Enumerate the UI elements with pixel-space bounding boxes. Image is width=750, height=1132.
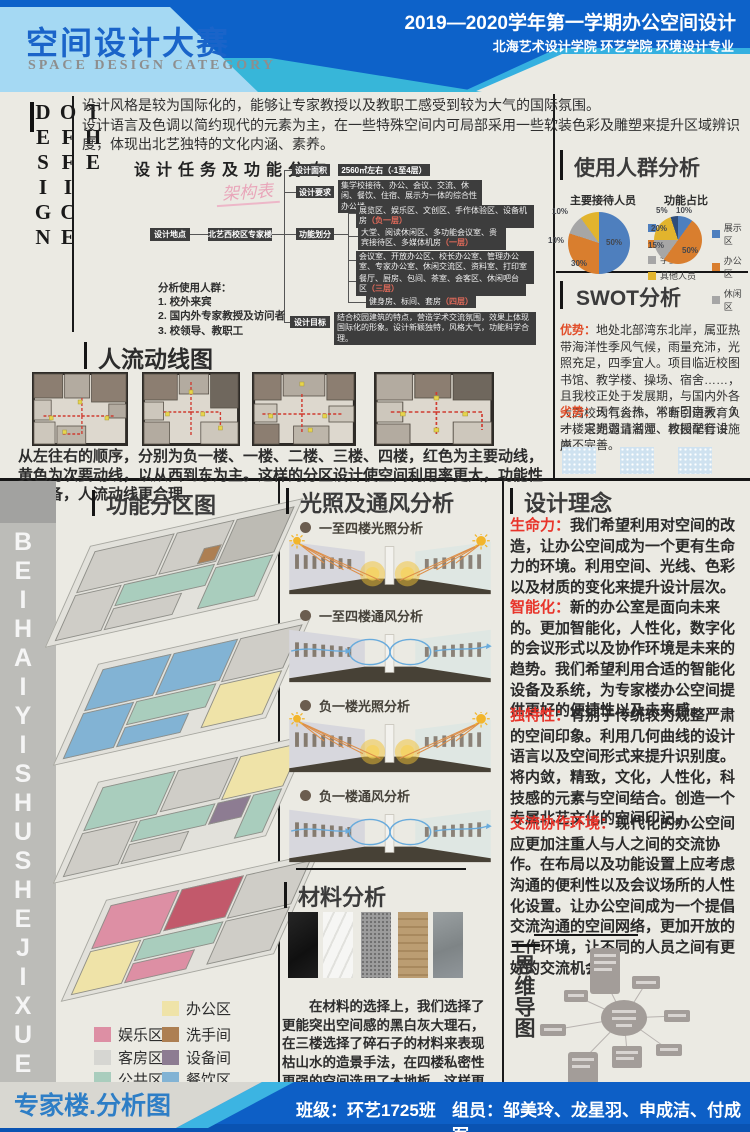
concept-item-vitality: 生命力：我们希望利用对空间的改造，让办公空间成为一个更有生命力的环境。利用空间、… (510, 516, 748, 599)
mindmap-graphic (532, 940, 750, 1091)
concept-item-smart: 智能化：新的办公室是面向未来的。更加智能化，人性化，数字化的会议形式以及协作环境… (510, 598, 748, 722)
users-analysis: 分析使用人群： 1. 校外来宾 2. 国内外专家教授及访问者 3. 校领导、教职… (158, 281, 285, 338)
flow-line (190, 234, 208, 235)
bullet-icon (300, 610, 311, 621)
legend-swatch (648, 272, 656, 280)
team-label: 组员： (452, 1101, 503, 1120)
flow-location-label: 设计地点 (150, 228, 190, 241)
flow-zone-5: 健身房、标间、套房（四层） (366, 296, 476, 308)
header-band: 空间设计大赛 SPACE DESIGN CATEGORY 2019—2020学年… (0, 0, 750, 92)
pie1-pct: 50% (606, 238, 622, 247)
concept-lead: 智能化： (510, 599, 570, 616)
legend-item: 办公区 (712, 254, 750, 280)
light-diagram-2 (286, 712, 494, 779)
zone-floor: （三层） (367, 284, 399, 293)
legend-swatch (712, 296, 720, 304)
flow-line (284, 170, 292, 171)
expert-building-label: 专家楼.分析图 (14, 1086, 171, 1122)
flow-require-label: 设计要求 (296, 186, 334, 198)
lightvent-title: 光照及通风分析 (300, 486, 454, 518)
materials-title: 材料分析 (298, 880, 386, 912)
legend-label: 娱乐区 (118, 1024, 163, 1045)
axon-floor-plate-4 (61, 852, 320, 1002)
users-title: 分析使用人群： (158, 281, 285, 295)
materials-title-bar (284, 882, 287, 908)
zone-legend-item: 设备间 (162, 1047, 231, 1068)
concept-lead: 独特性： (510, 707, 570, 724)
vent-diagram-2 (286, 802, 494, 869)
material-swatch-white-marble (323, 912, 353, 978)
poster-subtitle: SPACE DESIGN CATEGORY (28, 58, 276, 74)
legend-swatch (648, 256, 656, 264)
flow-area-label: 设计面积 (292, 164, 330, 176)
flow-goal-value: 结合校园建筑的特点，营造学术交流氛围，效果上体现国际化的形象。设计新颖独特，风格… (334, 312, 536, 345)
legend-swatch (162, 1001, 179, 1016)
floor-plan-3 (252, 372, 356, 451)
legend-swatch (162, 1027, 179, 1042)
flow-zone-2: 大堂、阅读休闲区、多功能会议室、贵宾接待区、多媒体机房（一层） (358, 227, 506, 250)
flow-goal-label: 设计目标 (290, 316, 330, 328)
flow-spine-2 (348, 213, 349, 303)
bullet-icon (300, 522, 311, 533)
swot-title: SWOT分析 (576, 282, 681, 312)
material-swatch-gray-marble (433, 912, 463, 978)
class-value: 环艺1725班 (347, 1101, 436, 1120)
vent-diagram-1 (286, 622, 494, 689)
zoning-title: 功能分区图 (106, 488, 216, 520)
header-course: 2019—2020学年第一学期办公空间设计 (404, 8, 736, 35)
legend-swatch (712, 230, 720, 238)
users-item: 3. 校领导、教职工 (158, 324, 285, 338)
pie1-title: 主要接待人员 (570, 192, 636, 208)
material-swatch-black-marble (288, 912, 318, 978)
legend-label: 客房区 (118, 1047, 163, 1068)
swot-weakness-label: 劣势： (560, 405, 596, 419)
watermark-band-top (0, 481, 56, 523)
pie2-pct: 10% (676, 206, 692, 215)
divider-col2 (502, 481, 504, 1082)
material-swatch-wood (398, 912, 428, 978)
circulation-title: 人流动线图 (98, 340, 213, 374)
circulation-caption: 从左往右的顺序，分别为负一楼、一楼、二楼、三楼、四楼，红色为主要动线，黄色为次要… (18, 448, 546, 504)
zone-text: 大堂、阅读休闲区、多功能会议室、贵宾接待区、多媒体机房 (361, 228, 497, 247)
flow-line (272, 234, 284, 235)
concept-text: 有别于传统较为规整严肃的空间印象。利用几何曲线的设计语言以及空间形式来提升识别度… (510, 707, 735, 827)
lightvent-title-bar (286, 488, 289, 514)
zone-text: 健身房、标间、套房 (369, 297, 441, 306)
floor-plan-4 (374, 372, 494, 451)
zone-text: 会议室、开放办公区、校长办公室、管理办公室、专家办公室、休闲交流区、资料室、打印… (359, 252, 527, 271)
floor-plan-2 (142, 372, 240, 451)
concept-text: 新的办公室是面向未来的。更加智能化，人性化，数字化的会议形式以及协作环境是未来的… (510, 599, 735, 719)
legend-label: 展示区 (724, 221, 750, 247)
flow-zone-4: 餐厅、厨房、包间、茶室、会客区、休闲吧台区（三层） (356, 273, 526, 296)
users-item: 2. 国内外专家教授及访问者 (158, 309, 285, 323)
flow-zoning-label: 功能划分 (296, 228, 334, 240)
map-thumbnail (678, 447, 712, 474)
pie1-pct: 10% (552, 207, 568, 216)
legend-swatch (94, 1027, 111, 1042)
zoning-title-bar (92, 490, 95, 516)
legend-swatch (94, 1050, 111, 1065)
pie1-pct: 10% (548, 236, 564, 245)
concept-title-bar (510, 488, 513, 514)
zone-floor: （一层） (441, 238, 473, 247)
floor-plan-1 (32, 372, 128, 451)
flow-line (284, 192, 296, 193)
tasks-note: 架构表 (215, 176, 280, 207)
materials-divider (296, 868, 466, 870)
flow-line (348, 236, 358, 237)
legend-label: 办公区 (186, 998, 231, 1019)
legend-label: 其他人员 (660, 269, 696, 282)
intro-line2: 设计语言及色调以简约现代的元素为主，在一些特殊空间内可局部采用一些软装色彩及雕塑… (82, 116, 742, 155)
swot-title-bar (560, 281, 563, 309)
header-school: 北海艺术设计学院 环艺学院 环境设计专业 (493, 36, 734, 55)
legend-label: 设备间 (186, 1047, 231, 1068)
flow-location-value: 北艺西校区专家楼 (208, 228, 272, 241)
intro-line1: 设计风格是较为国际化的，能够让专家教授以及教职工感受到较为大气的国际氛围。 (82, 96, 742, 116)
pie2-legend: 展示区 办公区 休闲区 (712, 221, 750, 313)
users-item: 1. 校外来宾 (158, 295, 285, 309)
flow-area-value: 2560㎡左右（-1至4层） (338, 164, 430, 176)
zone-floor: （四层） (441, 297, 473, 306)
map-thumbnail (562, 447, 596, 474)
flow-line (334, 234, 348, 235)
legend-label: 洗手间 (186, 1024, 231, 1045)
legend-item: 展示区 (712, 221, 750, 247)
intro-paragraph: 设计风格是较为国际化的，能够让专家教授以及教职工感受到较为大气的国际氛围。 设计… (82, 96, 742, 155)
pie2-pct: 20% (651, 224, 667, 233)
audience-title: 使用人群分析 (574, 152, 700, 182)
concept-title: 设计理念 (524, 486, 612, 518)
legend-swatch (712, 263, 720, 271)
legend-item: 休闲区 (712, 287, 750, 313)
legend-item: 其他人员 (648, 269, 696, 282)
mindmap-divider (534, 934, 638, 936)
watermark-text: BEIHAIYISHUSHEJIXUEYUAN (8, 528, 37, 1084)
light-diagram-1 (286, 534, 494, 601)
zone-legend-item: 客房区 (94, 1047, 163, 1068)
zone-legend-item: 娱乐区 (94, 1024, 163, 1045)
concept-lead: 交流协作环境： (510, 815, 615, 832)
flow-line (348, 260, 356, 261)
concept-item-unique: 独特性：有别于传统较为规整严肃的空间印象。利用几何曲线的设计语言以及空间形式来提… (510, 706, 748, 830)
audience-title-bar (560, 150, 563, 180)
pie1-pct: 30% (571, 259, 587, 268)
zone-legend-item: 洗手间 (162, 1024, 231, 1045)
class-label: 班级： (296, 1101, 347, 1120)
legend-label: 办公区 (724, 254, 750, 280)
footer-team: 组员：邹美玲、龙星羽、申成洁、付成军 (452, 1096, 750, 1132)
zone-legend-item: 办公区 (162, 998, 231, 1019)
circulation-title-bar (84, 342, 87, 369)
footer-class: 班级：环艺1725班 (296, 1096, 436, 1121)
pie2-pct: 50% (682, 246, 698, 255)
pie2-pct: 5% (656, 206, 668, 215)
map-thumbnail (620, 447, 654, 474)
flow-zone-1: 展览区、娱乐区、文创区、手作体验区、设备机房（负一层） (356, 205, 534, 228)
flow-line (348, 302, 366, 303)
bullet-icon (300, 790, 311, 801)
axon-zone (216, 506, 294, 565)
swot-strength-label: 优势： (560, 323, 596, 337)
legend-swatch (162, 1050, 179, 1065)
bullet-icon (300, 700, 311, 711)
flow-line (284, 234, 296, 235)
material-swatch-terrazzo (361, 912, 391, 978)
concept-lead: 生命力： (510, 517, 570, 534)
legend-label: 休闲区 (724, 287, 750, 313)
flow-line (348, 281, 356, 282)
pie2-pct: 15% (648, 241, 664, 250)
poster: 空间设计大赛 SPACE DESIGN CATEGORY 2019—2020学年… (0, 0, 750, 1132)
zone-floor: （负一层） (367, 216, 407, 225)
